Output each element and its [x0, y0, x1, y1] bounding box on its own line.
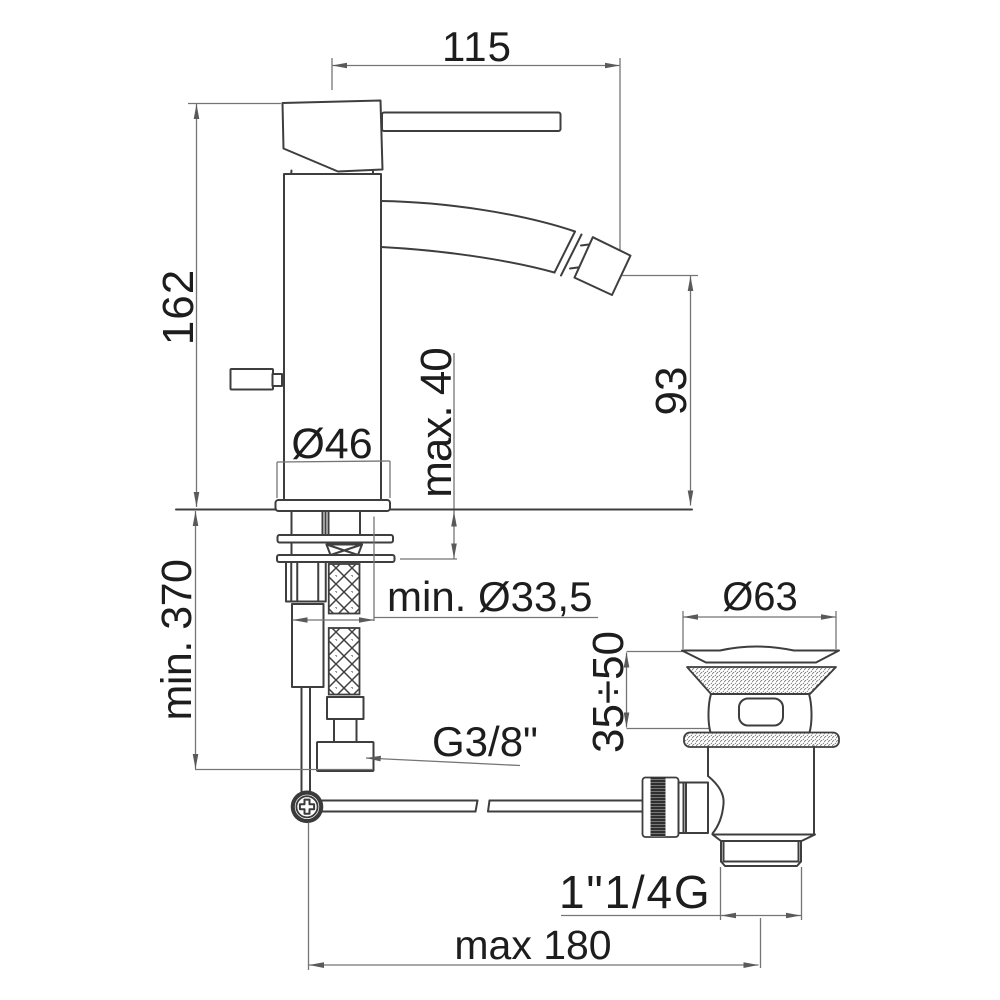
svg-text:1"1/4G: 1"1/4G — [559, 866, 711, 918]
svg-text:115: 115 — [442, 23, 512, 70]
svg-text:Ø63: Ø63 — [722, 575, 798, 619]
svg-text:93: 93 — [647, 367, 696, 416]
svg-text:min. Ø33,5: min. Ø33,5 — [387, 573, 592, 620]
svg-text:G3/8": G3/8" — [432, 718, 538, 765]
svg-text:max 180: max 180 — [454, 922, 611, 968]
svg-text:162: 162 — [154, 269, 203, 345]
svg-text:35÷50: 35÷50 — [584, 631, 633, 753]
svg-text:max. 40: max. 40 — [412, 348, 461, 498]
svg-text:min. 370: min. 370 — [153, 560, 201, 721]
